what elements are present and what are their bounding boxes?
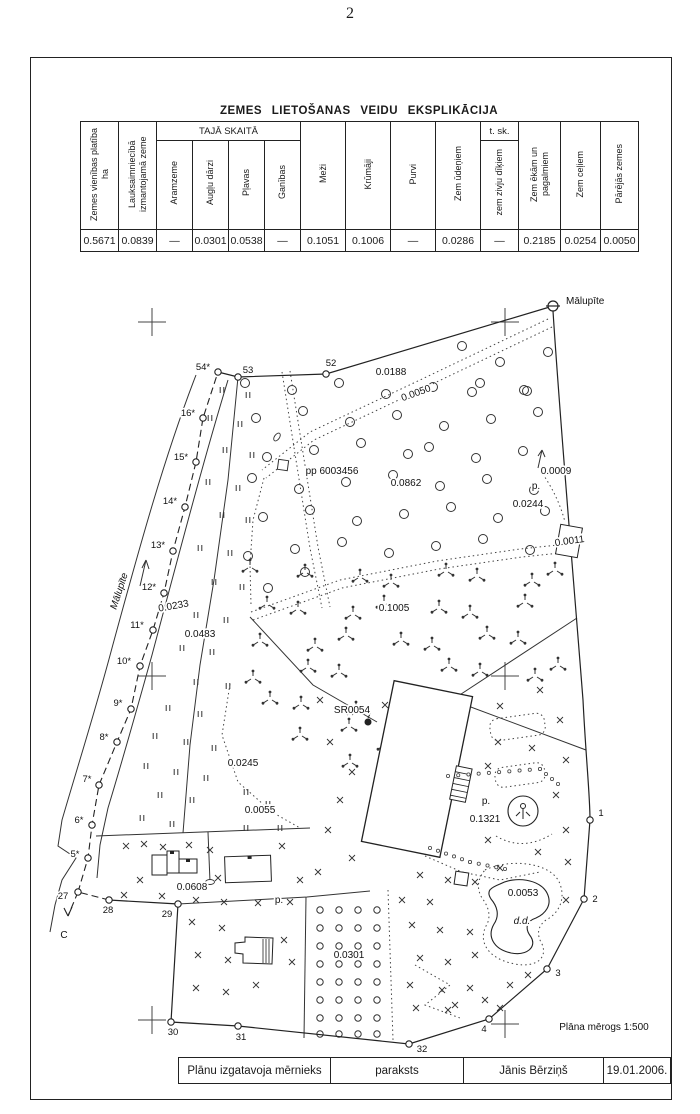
grid-cross-symbol [138,1006,166,1034]
value-cell: 0.5671 [81,230,119,252]
tree-symbol [494,514,503,523]
map-point-marker [75,889,81,895]
tree-symbol [400,510,409,519]
shrub-symbol [300,659,316,672]
orchard-tree-symbol [317,943,323,949]
value-cell: 0.0538 [229,230,265,252]
map-point-marker [544,966,550,972]
map-area-label: 0.0009 [541,466,572,477]
map-point-label: 4 [481,1024,486,1035]
value-cell: 0.0050 [601,230,639,252]
tree-symbol [404,450,413,459]
grid-cross-symbol [491,308,519,336]
map-area-label: p. [482,796,490,807]
path-dot [544,772,547,775]
x-symbol [565,859,571,865]
ii-symbol [220,387,224,393]
x-symbol [485,763,491,769]
shrub-symbol [527,668,543,681]
map-point-marker [200,415,206,421]
path-dot [503,867,506,870]
map-area-label: 0.1005 [379,603,410,614]
map-point-label: 30 [168,1027,179,1038]
tree-symbol [335,379,344,388]
col-header-ganibas: Ganības [265,141,301,230]
x-symbol [537,687,543,693]
path-dot [428,846,431,849]
footer-surveyor-name: Jānis Bērziņš [464,1058,604,1084]
path-dot [477,772,480,775]
value-cell: 0.1006 [346,230,391,252]
x-symbol [121,892,127,898]
ii-symbol [198,711,202,717]
survey-map: 12345*6*7*8*9*10*11*12*13*14*15*16*54*53… [30,268,671,1057]
value-cell: — [157,230,193,252]
tree-symbol [472,454,481,463]
x-symbol [297,877,303,883]
shrub-symbol [472,663,488,676]
orchard-tree-symbol [317,1015,323,1021]
tree-symbol [306,506,315,515]
x-symbol [439,987,445,993]
path-dot [550,777,553,780]
shrub-symbol [393,632,409,645]
map-area-label: C [60,930,67,941]
shrub-symbol [297,564,313,577]
map-point-label: 28 [103,905,114,916]
ii-symbol [140,815,144,821]
shrub-symbol [290,601,306,614]
tree-symbol [291,545,300,554]
ii-symbol [153,733,157,739]
x-symbol [535,849,541,855]
ii-symbol [236,485,240,491]
orchard-tree-symbol [374,997,380,1003]
orchard-tree-symbol [374,943,380,949]
survey-map-canvas: 12345*6*7*8*9*10*11*12*13*14*15*16*54*53… [30,268,671,1057]
map-point-marker [215,369,221,375]
path-dot [508,770,511,773]
shrub-symbol [262,691,278,704]
ii-symbol [238,421,242,427]
scanned-survey-document: { "page": { "number": "2" }, "explicatio… [0,0,700,1114]
value-cell: — [391,230,436,252]
shrub-symbol [242,559,258,572]
ii-symbol [190,797,194,803]
map-point-label: 16* [181,408,196,419]
map-point-marker [193,459,199,465]
path-dot [436,849,439,852]
x-symbol [413,1005,419,1011]
map-point-label: 8* [100,732,109,743]
ii-symbol [158,792,162,798]
x-symbol [472,879,478,885]
orchard-tree-symbol [317,961,323,967]
value-cell: 0.0839 [119,230,157,252]
x-symbol [563,897,569,903]
map-labels: Mālupīte0.01880.0050pp 60034560.08620.00… [60,296,649,1033]
col-header-mezi: Meži [301,122,346,230]
shrub-symbol [345,606,361,619]
value-cell: 0.1051 [301,230,346,252]
orchard-tree-symbol [355,1031,361,1037]
map-area-label: 0.0245 [228,758,259,769]
map-area-label: 0.0608 [177,882,208,893]
ii-symbol [198,545,202,551]
map-point-label: 15* [174,452,189,463]
x-symbol [159,893,165,899]
shrub-symbol [383,574,399,587]
orchard-tree-symbol [374,979,380,985]
tree-symbol [288,386,297,395]
ii-symbol [240,584,244,590]
col-header-lauksaimnieciba: Lauksaimniecībā izmantojamā zeme [119,122,157,230]
x-symbol [317,697,323,703]
shrub-symbol [259,596,275,609]
tree-symbol [479,535,488,544]
map-area-label: 0.0050 [400,383,433,404]
map-area-label: p. [532,481,540,492]
footer-signature-table: Plānu izgatavoja mērnieks paraksts Jānis… [178,1057,671,1084]
tree-symbol [346,418,355,427]
ii-symbol [208,415,212,421]
shrub-symbol [342,754,358,767]
value-cell: 0.0286 [436,230,481,252]
x-symbol [507,982,513,988]
shrub-symbol [252,633,268,646]
map-point-marker [581,896,587,902]
value-cell: 0.0254 [561,230,601,252]
path-dot [528,768,531,771]
map-area-label: 0.0483 [185,629,216,640]
x-symbol [349,855,355,861]
tree-symbol [342,478,351,487]
orchard-tree-symbol [374,1015,380,1021]
shrub-symbol [338,627,354,640]
x-symbol [467,985,473,991]
x-symbol [472,952,478,958]
ii-symbol [174,769,178,775]
map-point-marker [150,627,156,633]
tree-symbol [425,443,434,452]
x-symbol [399,897,405,903]
shrub-symbol [510,631,526,644]
shrub-symbol [479,626,495,639]
tree-symbol [520,386,529,395]
x-symbol [193,985,199,991]
x-symbol [382,702,388,708]
orchard-tree-symbol [355,925,361,931]
x-symbol [337,797,343,803]
shrub-symbol [550,657,566,670]
orchard-tree-symbol [374,961,380,967]
map-point-label: 53 [243,365,254,376]
ii-symbol [194,612,198,618]
shrub-symbol [462,605,478,618]
ii-symbol [144,763,148,769]
ii-symbol [180,645,184,651]
x-symbol [160,844,166,850]
tree-symbol [458,342,467,351]
path-dot [556,782,559,785]
map-point-label: 5* [71,849,80,860]
explication-values-row: 0.5671 0.0839 — 0.0301 0.0538 — 0.1051 0… [81,230,639,252]
tree-symbol [432,542,441,551]
shrub-symbol [431,600,447,613]
page-number: 2 [0,5,700,23]
tree-symbol [483,475,492,484]
map-point-label: 13* [151,540,166,551]
tree-symbol [385,549,394,558]
x-symbol [452,1002,458,1008]
map-point-label: 6* [75,815,84,826]
group-header-taja-skaita: TAJĀ SKAITĀ [157,122,301,141]
map-point-label: 9* [114,698,123,709]
tree-symbol [295,485,304,494]
map-area-label: 0.0188 [376,367,407,378]
x-symbol [445,1007,451,1013]
path-dot [498,771,501,774]
x-symbol [141,841,147,847]
tree-symbol [447,503,456,512]
map-grid-crosses [138,308,519,1038]
map-point-marker [406,1041,412,1047]
value-cell: 0.0301 [193,230,229,252]
col-header-auglu-darzi: Augļu dārzi [193,141,229,230]
x-symbol [195,952,201,958]
path-dot [446,774,449,777]
x-symbol [281,937,287,943]
tree-symbol [496,358,505,367]
map-area-label: SR0054 [334,705,371,716]
ii-symbol [278,825,282,831]
x-symbol [409,922,415,928]
tree-symbol [468,388,477,397]
map-point-marker [175,901,181,907]
map-point-marker [235,1023,241,1029]
map-point-marker [89,822,95,828]
map-area-label: d.d. [514,916,531,927]
map-point-label: 7* [83,774,92,785]
map-point-label: 1 [598,808,603,819]
explication-table: Zemes vienības platība ha Lauksaimniecīb… [80,121,639,252]
col-header-aramzeme: Aramzeme [157,141,193,230]
shrub-symbol [424,637,440,650]
x-symbol [407,982,413,988]
shrub-symbol [352,569,368,582]
path-dot [495,866,498,869]
col-header-zem-udeniem: Zem ūdeņiem [436,122,481,230]
x-symbol [445,877,451,883]
shrub-symbol [307,638,323,651]
ii-symbol [184,739,188,745]
ii-symbol [212,745,216,751]
col-header-plavas: Pļavas [229,141,265,230]
map-point-marker [114,739,120,745]
footer-signature-label: paraksts [331,1058,464,1084]
orchard-tree-symbol [355,907,361,913]
map-area-label: 0.0055 [245,805,276,816]
map-area-label: 0.0862 [391,478,422,489]
x-symbol [279,843,285,849]
map-area-label: 0.0053 [508,888,539,899]
x-symbol [427,899,433,905]
x-symbol [253,982,259,988]
ii-symbol [206,479,210,485]
map-point-label: 12* [142,582,157,593]
map-point-marker [587,817,593,823]
shrub-symbol [341,718,357,731]
col-header-zem-ekam: Zem ēkām un pagalmiem [519,122,561,230]
map-area-label: 0.0244 [513,499,544,510]
shrub-symbol [438,563,454,576]
x-symbol [223,989,229,995]
map-area-label: Plāna mērogs 1:500 [559,1022,649,1033]
tree-symbol [248,474,257,483]
shrub-symbol [245,670,261,683]
col-header-purvi: Purvi [391,122,436,230]
map-point-marker [161,590,167,596]
ii-symbol [226,683,230,689]
tree-symbol [310,446,319,455]
x-symbol [325,827,331,833]
map-area-label: p. [275,895,283,906]
path-dot [444,852,447,855]
map-area-label: 0.0233 [158,598,190,614]
orchard-tree-symbol [317,979,323,985]
tree-symbol [263,453,272,462]
footer-maker-label: Plānu izgatavoja mērnieks [179,1058,331,1084]
ii-symbol [246,517,250,523]
orchard-tree-symbol [317,907,323,913]
x-symbol [123,843,129,849]
path-dot [538,767,541,770]
grid-cross-symbol [491,662,519,690]
ii-symbol [224,617,228,623]
tree-symbol [534,408,543,417]
tree-symbol [476,379,485,388]
map-point-marker [170,548,176,554]
map-point-marker [486,1016,492,1022]
path-dot [460,858,463,861]
orchard-tree-symbol [374,1031,380,1037]
orchard-tree-symbol [336,1015,342,1021]
footer-date: 19.01.2006. [604,1058,671,1084]
orchard-tree-symbol [374,925,380,931]
col-header-parejas: Pārējās zemes [601,122,639,230]
ii-symbol [223,447,227,453]
path-dot [468,860,471,863]
tree-symbol [264,584,273,593]
value-cell: — [265,230,301,252]
map-point-marker [235,374,241,380]
x-symbol [553,792,559,798]
x-symbol [219,925,225,931]
orchard-tree-symbol [336,943,342,949]
map-point-marker [137,663,143,669]
x-symbol [529,745,535,751]
orchard-tree-symbol [374,907,380,913]
x-symbol [207,847,213,853]
col-header-krumaji: Krūmāji [346,122,391,230]
map-point-marker [323,371,329,377]
ii-symbol [228,550,232,556]
tree-symbol [259,513,268,522]
tree-symbol [353,517,362,526]
tree-symbol [393,411,402,420]
value-cell: 0.2185 [519,230,561,252]
ii-symbol [170,821,174,827]
x-symbol [349,769,355,775]
shrub-symbol [292,727,308,740]
tree-symbol [299,407,308,416]
col-header-zem-celiem: Zem ceļiem [561,122,601,230]
shrub-symbol [547,562,563,575]
map-area-label: 0.1321 [470,814,501,825]
x-symbol [225,957,231,963]
path-dot [467,773,470,776]
map-point-label: 52 [326,358,337,369]
map-point-label: 27 [58,891,69,902]
x-symbol [497,703,503,709]
orchard-tree-symbol [355,961,361,967]
map-point-marker [168,1019,174,1025]
group-header-t-sk: t. sk. [481,122,519,141]
map-point-marker [106,897,112,903]
map-point-label: 14* [163,496,178,507]
shrub-symbol [517,594,533,607]
map-point-label: 29 [162,909,173,920]
map-area-label: pp 6003456 [306,466,359,477]
map-point-marker [182,504,188,510]
x-symbol [327,739,333,745]
x-symbol [215,875,221,881]
ii-symbol [210,649,214,655]
tree-symbol [244,552,253,561]
map-point-label: 11* [130,620,144,631]
orchard-tree-symbol [317,925,323,931]
x-symbol [437,927,443,933]
x-symbol [482,997,488,1003]
path-dot [457,774,460,777]
grid-cross-symbol [138,308,166,336]
ii-symbol [204,775,208,781]
map-point-label: 32 [417,1044,428,1055]
tree-symbol [382,390,391,399]
shrub-symbol [331,664,347,677]
orchard-tree-symbol [336,961,342,967]
x-symbol [445,959,451,965]
path-dot [518,769,521,772]
x-symbol [417,872,423,878]
x-symbol [557,717,563,723]
path-dot [477,862,480,865]
ii-symbol [166,705,170,711]
map-point-marker [128,706,134,712]
tree-symbol [241,379,250,388]
ii-symbol [246,392,250,398]
map-area-label: Mālupīte [566,296,605,307]
col-header-platiba: Zemes vienības platība ha [81,122,119,230]
x-symbol [186,842,192,848]
ii-symbol [250,452,254,458]
map-point-label: 10* [117,656,132,667]
x-symbol [287,899,293,905]
map-point-label: 2 [592,894,597,905]
tree-symbol [338,538,347,547]
orchard-tree-symbol [336,997,342,1003]
orchard-tree-symbol [355,1015,361,1021]
